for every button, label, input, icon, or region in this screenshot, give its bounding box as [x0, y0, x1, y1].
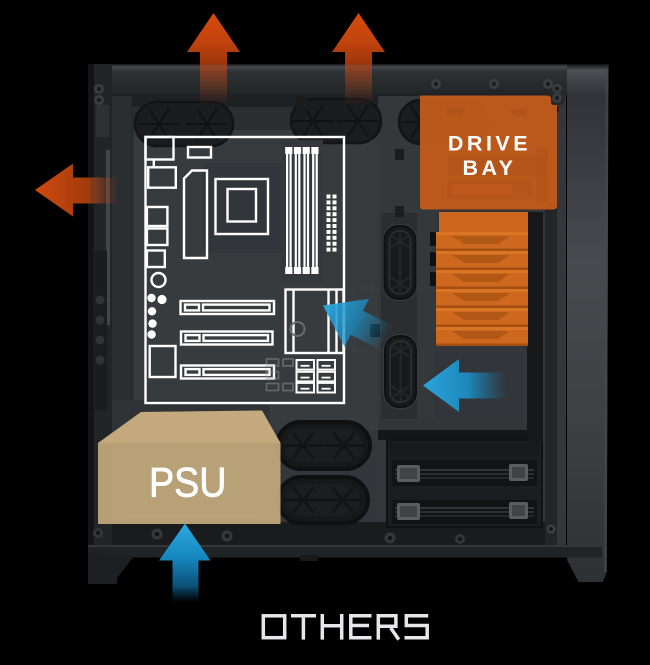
svg-text:PSU: PSU [149, 459, 227, 506]
svg-text:BAY: BAY [463, 156, 517, 180]
svg-text:DRIVE: DRIVE [448, 132, 531, 156]
